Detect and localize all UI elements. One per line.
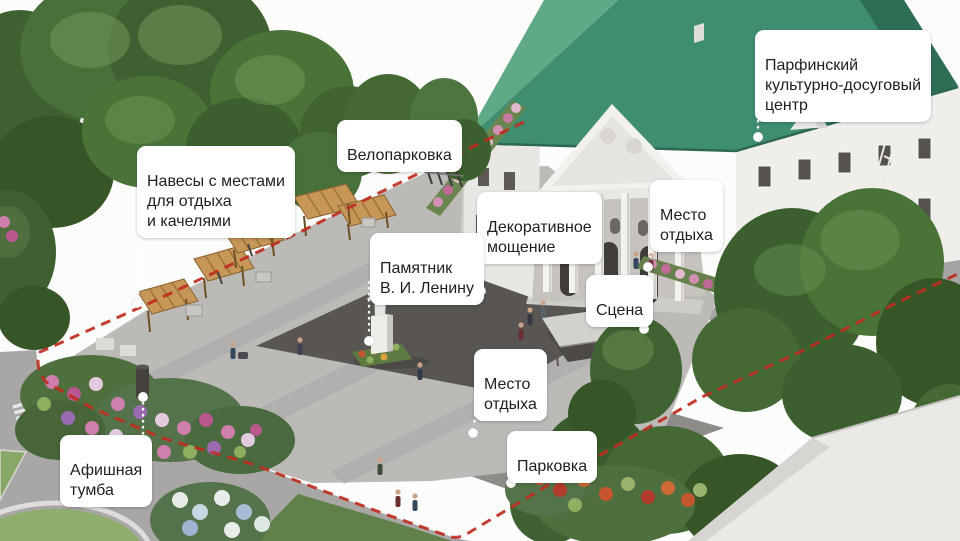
site-plan-render: Парфинский культурно-досуговый центр Вел… (0, 0, 960, 541)
callout-text: Декоративное мощение (487, 219, 592, 256)
callout-text: Сцена (596, 302, 643, 319)
stroller (238, 352, 248, 359)
callout-text: Парковка (517, 458, 587, 475)
callout-text: Афишная тумба (70, 462, 142, 499)
callout-canopies: Навесы с местами для отдыха и качелями (137, 146, 295, 238)
callout-bike-parking: Велопарковка (337, 120, 462, 172)
callout-text: Велопарковка (347, 147, 452, 164)
callout-lenin-monument: Памятник В. И. Ленину (370, 233, 484, 305)
callout-rest-area-bottom: Место отдыха (474, 349, 547, 421)
callout-text: Памятник В. И. Ленину (380, 260, 474, 297)
callout-parking: Парковка (507, 431, 597, 483)
callout-decorative-paving: Декоративное мощение (477, 192, 602, 264)
callout-rest-area-right: Место отдыха (650, 180, 723, 252)
callout-cultural-center: Парфинский культурно-досуговый центр (755, 30, 931, 122)
callout-text: Место отдыха (660, 207, 713, 244)
callout-poster-column: Афишная тумба (60, 435, 152, 507)
callout-text: Парфинский культурно-досуговый центр (765, 57, 921, 114)
callout-text: Место отдыха (484, 376, 537, 413)
callout-stage: Сцена (586, 275, 653, 327)
tree-highlight (602, 330, 654, 370)
callout-text: Навесы с местами для отдыха и качелями (147, 173, 285, 230)
